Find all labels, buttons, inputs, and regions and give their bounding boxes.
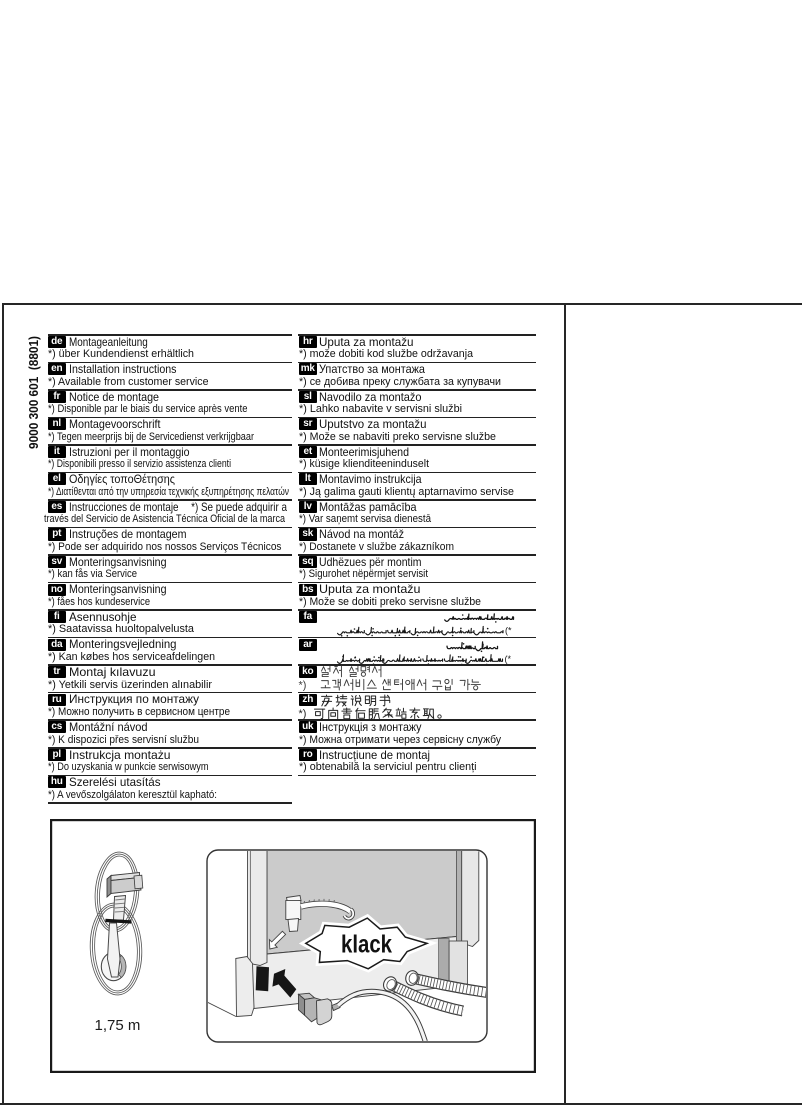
svg-text:*): *) — [298, 680, 306, 692]
svg-text:klack: klack — [341, 931, 392, 959]
svg-text:(*: (* — [505, 626, 512, 636]
svg-text:1,75 m: 1,75 m — [95, 1017, 141, 1034]
svg-text:*): *) — [298, 708, 306, 720]
svg-text:(*: (* — [504, 654, 511, 664]
